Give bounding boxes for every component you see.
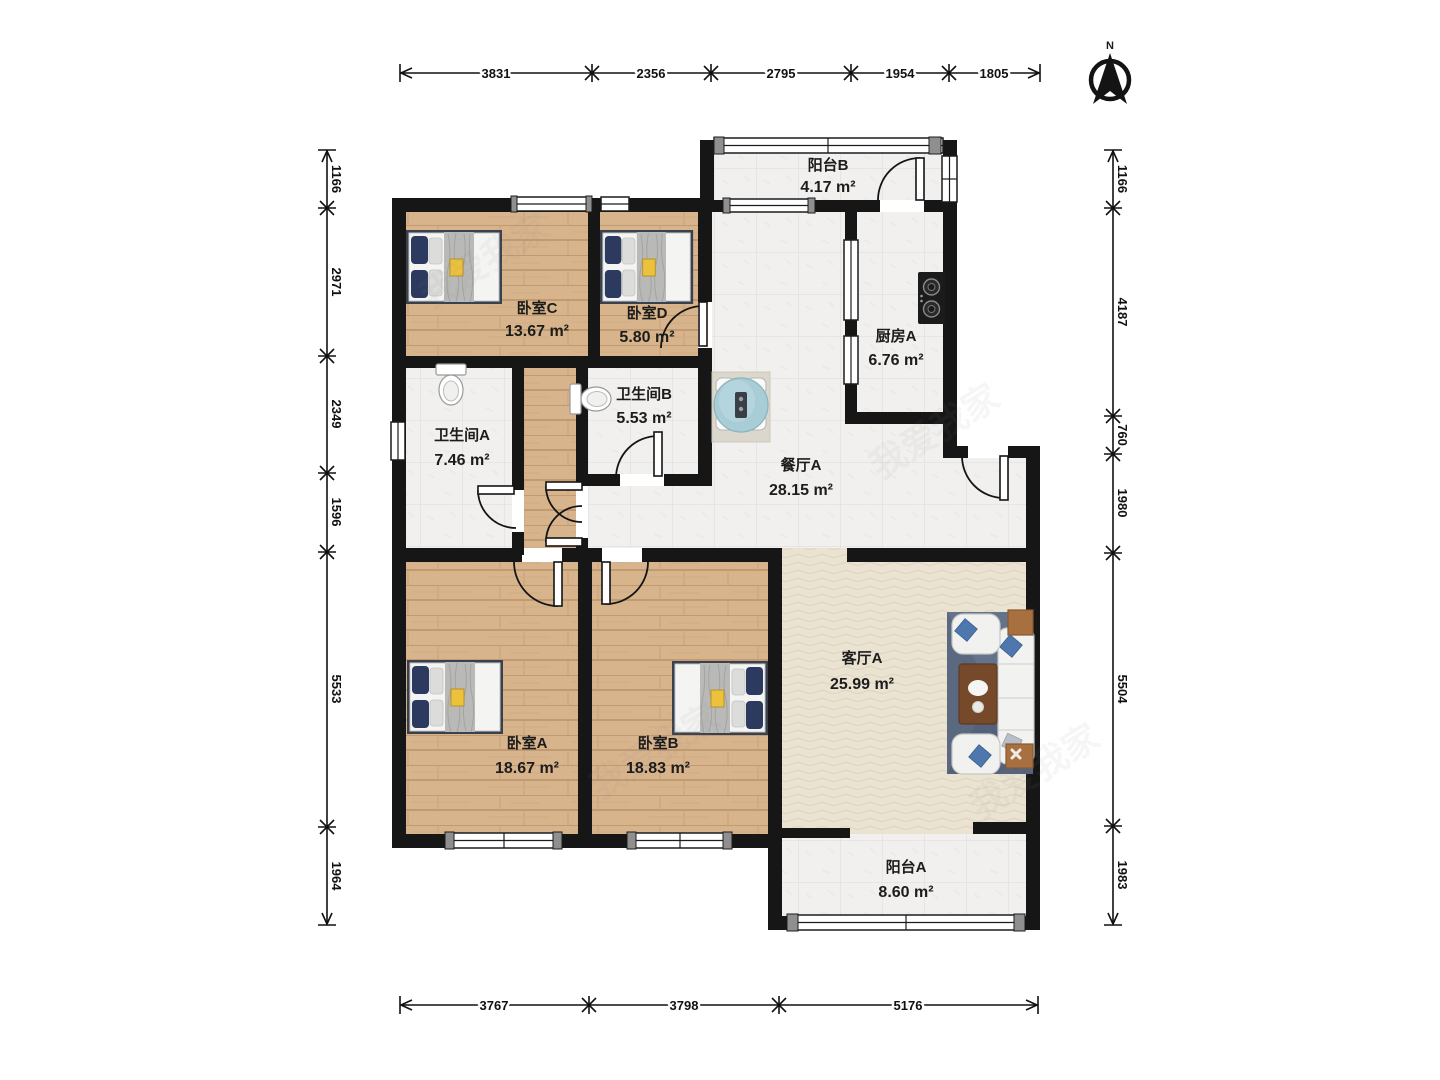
label-living-a: 客厅A — [841, 649, 883, 667]
svg-text:5176: 5176 — [894, 998, 923, 1013]
window-bedroom-a — [445, 832, 562, 849]
area-bedroom-c: 13.67 m² — [505, 323, 569, 340]
label-bathroom-b: 卫生间B — [616, 385, 672, 403]
window-bedroom-c — [511, 196, 592, 212]
area-living-a: 25.99 m² — [830, 676, 894, 693]
label-bedroom-a: 卧室A — [507, 734, 548, 752]
svg-text:1964: 1964 — [329, 862, 344, 892]
area-dining-a: 28.15 m² — [769, 482, 833, 499]
window-bedroom-d — [601, 197, 629, 211]
label-balcony-b: 阳台B — [808, 156, 849, 174]
svg-text:2971: 2971 — [329, 268, 344, 297]
window-bathroom-a — [391, 422, 405, 460]
svg-text:1166: 1166 — [329, 165, 344, 193]
north-label: N — [1106, 40, 1114, 52]
svg-text:1805: 1805 — [980, 66, 1009, 81]
window-balcony-b-right — [942, 156, 957, 202]
label-bedroom-d: 卧室D — [627, 304, 668, 322]
svg-text:3767: 3767 — [480, 998, 509, 1013]
dimension-top: 3831 2356 2795 1954 1805 — [400, 64, 1040, 82]
svg-text:1980: 1980 — [1115, 489, 1130, 518]
dimension-bottom: 3767 3798 5176 — [400, 996, 1038, 1014]
svg-text:2356: 2356 — [637, 66, 666, 81]
living-room-set — [947, 610, 1034, 774]
svg-text:3798: 3798 — [670, 998, 699, 1013]
label-bathroom-a: 卫生间A — [434, 426, 490, 444]
area-bathroom-b: 5.53 m² — [616, 410, 671, 427]
dining-floor — [943, 458, 1026, 548]
svg-text:5533: 5533 — [329, 675, 344, 704]
svg-text:760: 760 — [1115, 424, 1130, 446]
dimension-right: 1166 4187 760 1980 5504 1983 — [1104, 150, 1130, 925]
label-bedroom-b: 卧室B — [638, 734, 679, 752]
floor-plan-page: 我爱我家 我爱我家 我爱我家 我爱我家 阳台B 4.17 m² 卧室C 13.6… — [0, 0, 1440, 1080]
svg-text:2795: 2795 — [767, 66, 796, 81]
north-arrow-icon: N — [1091, 40, 1129, 104]
label-bedroom-c: 卧室C — [517, 299, 558, 317]
window-dining-balcony — [723, 198, 815, 213]
svg-text:1166: 1166 — [1115, 165, 1130, 193]
svg-text:1954: 1954 — [886, 66, 916, 81]
svg-text:3831: 3831 — [482, 66, 511, 81]
label-balcony-a: 阳台A — [886, 858, 927, 876]
area-balcony-b: 4.17 m² — [800, 179, 855, 196]
window-balcony-a — [787, 914, 1025, 931]
floor-plan-canvas: 我爱我家 我爱我家 我爱我家 我爱我家 阳台B 4.17 m² 卧室C 13.6… — [0, 0, 1440, 1080]
area-bedroom-b: 18.83 m² — [626, 760, 690, 777]
bed-bedroom-a — [407, 660, 503, 734]
hallway-floor — [524, 368, 576, 548]
window-kitchen-upper — [844, 240, 858, 320]
cooktop — [918, 272, 945, 324]
svg-text:2349: 2349 — [329, 400, 344, 429]
area-kitchen-a: 6.76 m² — [868, 352, 923, 369]
area-bedroom-d: 5.80 m² — [619, 329, 674, 346]
label-kitchen-a: 厨房A — [876, 327, 917, 345]
window-kitchen-lower — [844, 336, 858, 384]
svg-text:1596: 1596 — [329, 498, 344, 527]
dimension-left: 1166 2971 2349 1596 5533 1964 — [318, 150, 344, 925]
area-balcony-a: 8.60 m² — [878, 884, 933, 901]
bed-bedroom-d — [600, 230, 693, 304]
window-bedroom-b — [627, 832, 732, 849]
dining-table-set — [712, 372, 770, 442]
dining-floor — [588, 486, 712, 548]
window-balcony-b-top — [714, 137, 943, 154]
svg-text:4187: 4187 — [1115, 298, 1130, 327]
svg-text:1983: 1983 — [1115, 861, 1130, 890]
area-bathroom-a: 7.46 m² — [434, 452, 489, 469]
area-bedroom-a: 18.67 m² — [495, 760, 559, 777]
label-dining-a: 餐厅A — [781, 456, 822, 474]
svg-text:5504: 5504 — [1115, 675, 1130, 705]
